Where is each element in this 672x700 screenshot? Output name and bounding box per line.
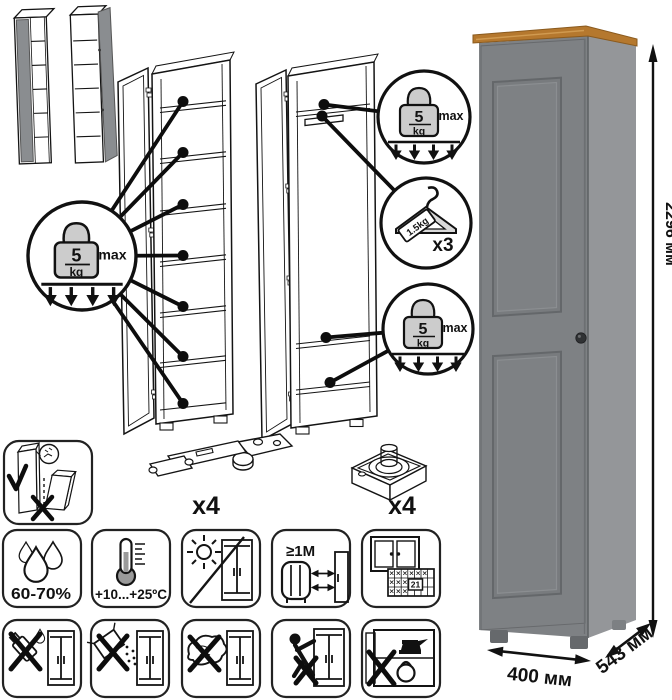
badge-weight-value: 5 [419,321,428,338]
wardrobe-foot [490,630,508,643]
foot-quantity: x4 [388,492,416,520]
mini-cabinet-open-door [70,6,117,163]
temperature-range-label: +10...+25ºC [95,586,167,602]
instruction-sheet: 5 kg max [0,0,672,700]
no-dragging-icon [272,620,350,697]
height-dimension: 2296 мм [649,44,672,638]
calendar-day-label: 21 [411,580,421,590]
shelf-load-badge: 5 kg max [28,202,136,310]
badge-max-label: max [98,246,126,262]
distance-label: ≥1M [286,543,315,560]
badge-weight-unit: kg [69,265,83,279]
wardrobe-render [473,26,637,649]
wardrobe-side-panel [588,36,636,638]
height-label: 2296 мм [662,202,672,266]
mini-cabinet-closed [14,9,59,164]
humidity-icon: 60-70% [3,530,81,607]
heat-source-distance-icon: ≥1M [272,530,350,607]
no-scouring-sponge-icon [182,620,260,697]
no-abrasive-powder-icon [87,620,169,697]
foot-hardware: x4 [352,445,426,521]
hinge-quantity: x4 [192,492,220,520]
weight-icon [64,223,89,243]
width-dimension: 400 мм [487,647,591,692]
hanger-multiplier: x3 [432,235,453,256]
badge-max-label: max [438,109,463,123]
wardrobe-foot [570,636,588,649]
no-liquid-cleaners-icon [3,620,81,697]
top-shelf-load-badge: 5 kg max [378,71,470,163]
badge-weight-value: 5 [415,109,424,126]
badge-weight-unit: kg [417,338,429,350]
wardrobe-foot [612,620,626,630]
calendar-icon: 21 [388,569,434,596]
door-knob [576,333,586,343]
humidity-range-label: 60-70% [11,586,71,603]
hinge-hardware: x4 [149,434,292,520]
no-overload-icon [362,620,440,697]
badge-max-label: max [442,321,467,335]
badge-weight-unit: kg [413,126,425,138]
hanger-load-badge: 1.5kg x3 [381,178,471,268]
anti-tip-warning-icon [4,441,92,524]
diagram-canvas: 5 kg max [0,0,672,700]
hanging-cabinet-diagram [256,54,378,440]
bottom-shelf-load-badge: 5 kg max [383,284,473,374]
temperature-icon: +10...+25ºC [92,530,170,607]
width-label: 400 мм [506,664,573,692]
ventilation-21-days-icon: 21 [362,530,440,607]
hinge-icon [149,434,292,476]
no-direct-sunlight-icon [182,530,260,607]
badge-weight-value: 5 [71,246,81,266]
